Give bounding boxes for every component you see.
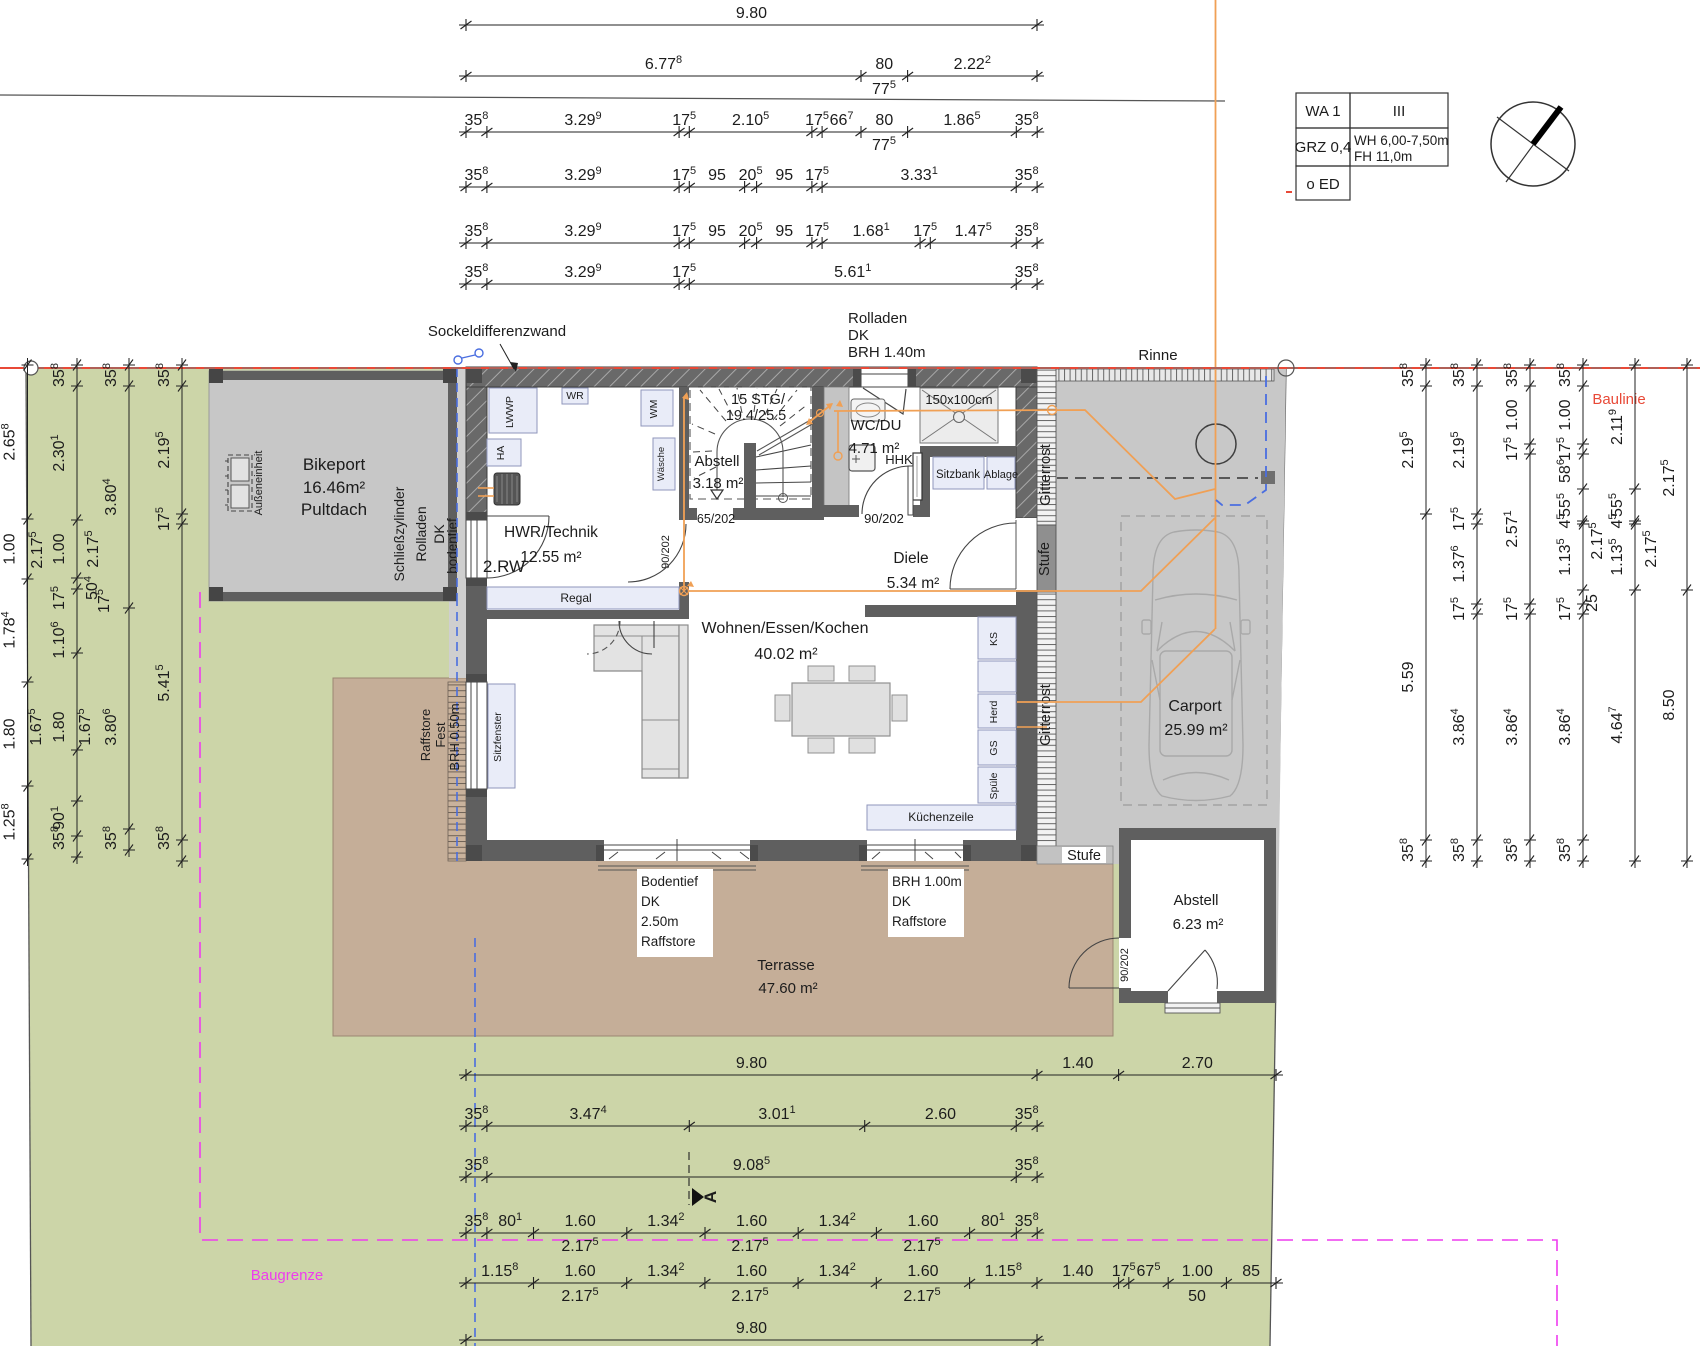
svg-text:2.70: 2.70 [1182, 1055, 1213, 1072]
svg-text:WA 1: WA 1 [1305, 103, 1340, 120]
svg-text:BRH 1.00m: BRH 1.00m [892, 874, 962, 889]
svg-text:1.40: 1.40 [1062, 1055, 1093, 1072]
svg-text:1.00: 1.00 [1182, 1263, 1213, 1280]
svg-text:47.60 m²: 47.60 m² [758, 980, 817, 997]
svg-text:175: 175 [1555, 597, 1574, 621]
svg-text:358: 358 [101, 363, 120, 387]
svg-text:1.00: 1.00 [1504, 399, 1521, 430]
svg-text:3.299: 3.299 [564, 110, 601, 129]
svg-text:15 STG/: 15 STG/ [731, 392, 786, 408]
svg-text:358: 358 [464, 110, 488, 129]
svg-text:358: 358 [1502, 838, 1521, 862]
svg-text:Fest: Fest [433, 722, 448, 748]
svg-text:175: 175 [805, 221, 829, 240]
svg-text:Rolladen: Rolladen [848, 310, 907, 327]
svg-text:95: 95 [775, 167, 793, 184]
svg-text:555: 555 [1555, 493, 1574, 517]
svg-text:3.864: 3.864 [1449, 708, 1468, 745]
svg-text:358: 358 [1015, 262, 1039, 281]
svg-text:Wohnen/Essen/Kochen: Wohnen/Essen/Kochen [702, 620, 869, 637]
svg-text:358: 358 [1555, 838, 1574, 862]
svg-text:BRH 0.50m: BRH 0.50m [447, 703, 462, 770]
svg-text:175: 175 [672, 165, 696, 184]
svg-text:175: 175 [1555, 437, 1574, 461]
svg-text:358: 358 [464, 262, 488, 281]
svg-text:1.60: 1.60 [907, 1263, 938, 1280]
svg-text:Stufe: Stufe [1067, 848, 1101, 864]
svg-text:12.55 m²: 12.55 m² [520, 549, 581, 566]
svg-text:Pultdach: Pultdach [301, 500, 367, 519]
svg-text:2.222: 2.222 [954, 54, 991, 73]
svg-text:2.175: 2.175 [1587, 522, 1606, 559]
svg-text:3.299: 3.299 [564, 262, 601, 281]
svg-text:1.60: 1.60 [565, 1213, 596, 1230]
svg-text:2.175: 2.175 [1659, 459, 1678, 496]
svg-text:586: 586 [1555, 459, 1574, 483]
svg-text:65/202: 65/202 [697, 512, 735, 526]
svg-text:6.23 m²: 6.23 m² [1173, 916, 1224, 933]
svg-text:8.50: 8.50 [1661, 689, 1678, 720]
svg-text:5.59: 5.59 [1400, 661, 1417, 692]
svg-text:2.571: 2.571 [1502, 510, 1521, 547]
svg-text:Bikeport: Bikeport [303, 455, 366, 474]
svg-text:19.4/25.5: 19.4/25.5 [726, 408, 786, 424]
svg-text:1.681: 1.681 [852, 221, 889, 240]
svg-text:2.RW: 2.RW [483, 557, 525, 576]
svg-text:1.376: 1.376 [1449, 545, 1468, 582]
svg-text:1.40: 1.40 [1062, 1263, 1093, 1280]
svg-text:2.195: 2.195 [1449, 431, 1468, 468]
svg-text:2.50m: 2.50m [641, 914, 679, 929]
svg-text:5.611: 5.611 [834, 262, 871, 281]
svg-text:9.80: 9.80 [736, 1320, 767, 1337]
svg-text:90/202: 90/202 [1119, 948, 1131, 982]
svg-text:775: 775 [872, 135, 896, 154]
svg-text:358: 358 [1555, 363, 1574, 387]
svg-text:9.80: 9.80 [736, 1055, 767, 1072]
svg-text:1.60: 1.60 [907, 1213, 938, 1230]
svg-text:Ablage: Ablage [984, 469, 1018, 481]
svg-text:3.18 m²: 3.18 m² [693, 475, 744, 492]
svg-text:1.135: 1.135 [1607, 538, 1626, 575]
svg-text:DK: DK [848, 327, 869, 344]
svg-text:1.60: 1.60 [736, 1263, 767, 1280]
svg-text:175: 175 [805, 110, 829, 129]
svg-text:90/202: 90/202 [864, 511, 904, 526]
svg-text:WR: WR [566, 390, 584, 402]
svg-text:FH 11,0m: FH 11,0m [1354, 149, 1412, 164]
svg-text:667: 667 [830, 110, 854, 129]
svg-text:80: 80 [875, 112, 893, 129]
svg-text:2.175: 2.175 [1641, 530, 1660, 567]
svg-text:Herd: Herd [988, 700, 1000, 723]
svg-text:358: 358 [1015, 221, 1039, 240]
svg-text:Gitterrost: Gitterrost [1037, 683, 1054, 746]
svg-text:1.80: 1.80 [2, 718, 19, 749]
svg-text:25: 25 [1584, 594, 1601, 612]
svg-text:40.02 m²: 40.02 m² [754, 646, 818, 663]
svg-text:358: 358 [464, 165, 488, 184]
svg-text:1.258: 1.258 [0, 803, 19, 840]
svg-text:Baulinie: Baulinie [1592, 391, 1645, 408]
svg-text:Sockeldifferenzwand: Sockeldifferenzwand [428, 323, 566, 340]
svg-text:Sitzbank: Sitzbank [936, 469, 980, 481]
svg-text:Wäsche: Wäsche [656, 447, 667, 481]
svg-text:Küchenzeile: Küchenzeile [908, 810, 974, 824]
svg-text:Stufe: Stufe [1037, 542, 1053, 576]
svg-text:4.647: 4.647 [1607, 706, 1626, 743]
svg-text:175: 175 [1502, 437, 1521, 461]
svg-text:175: 175 [913, 221, 937, 240]
svg-text:Regal: Regal [560, 591, 591, 605]
svg-text:3.299: 3.299 [564, 165, 601, 184]
svg-text:Raffstore: Raffstore [418, 709, 433, 762]
svg-text:175: 175 [672, 221, 696, 240]
svg-text:Abstell: Abstell [1173, 892, 1218, 909]
svg-text:95: 95 [708, 223, 726, 240]
svg-text:WM: WM [648, 400, 660, 419]
svg-text:9.80: 9.80 [736, 5, 767, 22]
svg-text:16.46m²: 16.46m² [303, 478, 366, 497]
svg-text:2.195: 2.195 [1398, 431, 1417, 468]
svg-text:1.475: 1.475 [955, 221, 992, 240]
svg-text:50: 50 [1188, 1288, 1206, 1305]
svg-text:DK: DK [641, 894, 660, 909]
svg-text:95: 95 [708, 167, 726, 184]
svg-text:95: 95 [775, 223, 793, 240]
svg-text:Carport: Carport [1168, 698, 1222, 715]
svg-text:HA: HA [495, 446, 507, 461]
svg-text:358: 358 [1015, 165, 1039, 184]
svg-text:GRZ 0,4: GRZ 0,4 [1295, 139, 1352, 156]
svg-text:175: 175 [1502, 597, 1521, 621]
svg-text:175: 175 [672, 262, 696, 281]
svg-text:Rolladen: Rolladen [413, 506, 429, 561]
svg-text:Abstell: Abstell [694, 453, 739, 470]
svg-text:KS: KS [988, 632, 1000, 646]
svg-text:775: 775 [872, 79, 896, 98]
svg-text:LWWP: LWWP [504, 396, 516, 428]
svg-text:358: 358 [154, 363, 173, 387]
svg-text:Raffstore: Raffstore [892, 914, 947, 929]
svg-text:Diele: Diele [893, 550, 928, 567]
svg-text:2.60: 2.60 [925, 1106, 956, 1123]
svg-text:III: III [1393, 103, 1406, 120]
svg-text:358: 358 [1449, 363, 1468, 387]
svg-text:175: 175 [805, 165, 829, 184]
svg-text:1.80: 1.80 [51, 711, 68, 742]
svg-text:358: 358 [1015, 110, 1039, 129]
svg-text:Bodentief: Bodentief [641, 874, 698, 889]
svg-text:2.658: 2.658 [0, 423, 19, 460]
svg-text:205: 205 [739, 165, 763, 184]
svg-text:25.99 m²: 25.99 m² [1164, 722, 1228, 739]
svg-text:358: 358 [1449, 838, 1468, 862]
svg-text:5.34 m²: 5.34 m² [887, 575, 940, 592]
svg-text:A: A [701, 1191, 720, 1203]
svg-text:1.00: 1.00 [51, 533, 68, 564]
svg-text:Spüle: Spüle [988, 772, 1000, 799]
svg-text:205: 205 [739, 221, 763, 240]
svg-text:1.135: 1.135 [1555, 538, 1574, 575]
svg-text:80: 80 [875, 56, 893, 73]
svg-text:HWR/Technik: HWR/Technik [504, 524, 598, 541]
svg-text:Terrasse: Terrasse [757, 957, 815, 974]
svg-text:6.778: 6.778 [645, 54, 682, 73]
svg-text:3.864: 3.864 [1555, 708, 1574, 745]
svg-text:Gitterrost: Gitterrost [1037, 443, 1054, 506]
svg-text:358: 358 [464, 221, 488, 240]
svg-text:150x100cm: 150x100cm [925, 392, 992, 407]
svg-text:358: 358 [1398, 838, 1417, 862]
svg-text:WC/DU: WC/DU [851, 417, 902, 434]
svg-text:358: 358 [1398, 363, 1417, 387]
svg-text:Baugrenze: Baugrenze [251, 1267, 324, 1284]
svg-text:Außeneinheit: Außeneinheit [253, 451, 265, 516]
svg-text:3.299: 3.299 [564, 221, 601, 240]
svg-text:175: 175 [672, 110, 696, 129]
svg-text:1.865: 1.865 [943, 110, 980, 129]
svg-text:GS: GS [988, 740, 1000, 755]
svg-text:WH 6,00-7,50m: WH 6,00-7,50m [1354, 133, 1449, 148]
svg-text:Raffstore: Raffstore [641, 934, 696, 949]
svg-text:o ED: o ED [1306, 176, 1340, 193]
svg-text:DK: DK [892, 894, 911, 909]
svg-text:175: 175 [1449, 507, 1468, 531]
svg-text:3.864: 3.864 [1502, 708, 1521, 745]
svg-text:Schließzylinder: Schließzylinder [391, 486, 407, 581]
svg-text:358: 358 [1502, 363, 1521, 387]
svg-text:85: 85 [1242, 1263, 1260, 1280]
svg-text:1.60: 1.60 [736, 1213, 767, 1230]
svg-text:2.105: 2.105 [732, 110, 769, 129]
svg-text:555: 555 [1607, 493, 1626, 517]
svg-text:175: 175 [1449, 597, 1468, 621]
svg-text:1.00: 1.00 [2, 533, 19, 564]
svg-text:Sitzfenster: Sitzfenster [492, 712, 504, 762]
svg-text:1.784: 1.784 [0, 611, 19, 648]
svg-text:Rinne: Rinne [1138, 347, 1177, 364]
svg-text:2.119: 2.119 [1607, 409, 1626, 445]
svg-text:HHK: HHK [885, 452, 913, 467]
svg-text:1.60: 1.60 [565, 1263, 596, 1280]
svg-text:3.331: 3.331 [901, 165, 938, 184]
svg-text:BRH 1.40m: BRH 1.40m [848, 344, 926, 361]
svg-text:1.00: 1.00 [1557, 399, 1574, 430]
svg-text:358: 358 [49, 363, 68, 387]
